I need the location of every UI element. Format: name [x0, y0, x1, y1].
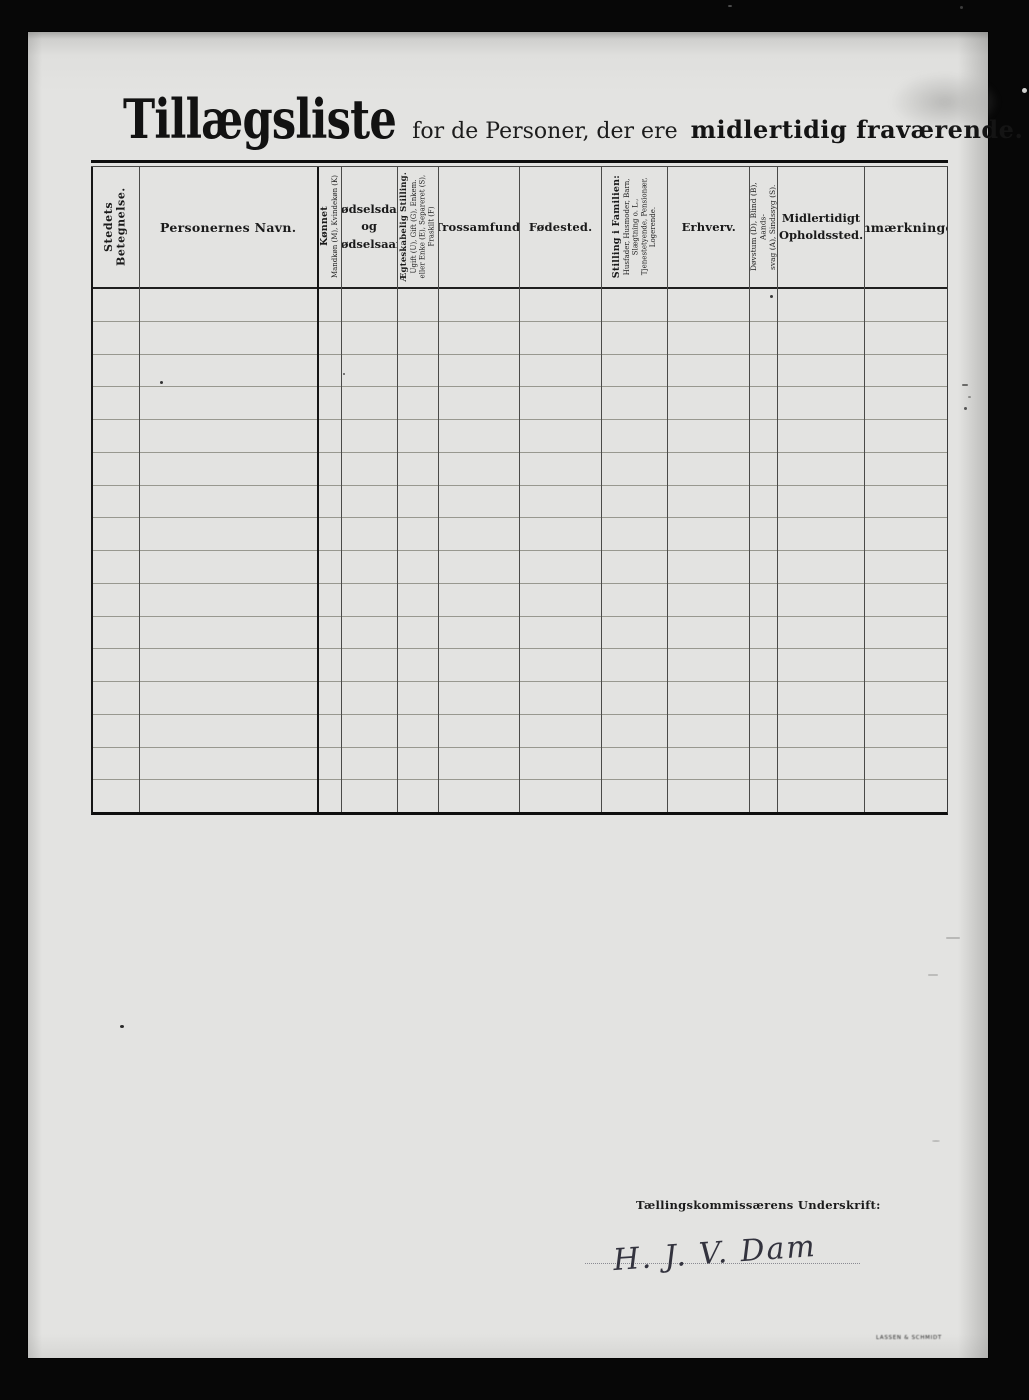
- table-cell-empty: [319, 584, 341, 617]
- ink-bleed-ghost: [890, 72, 1000, 132]
- table-cell-empty: [520, 748, 601, 781]
- table-cell-empty: [778, 322, 864, 355]
- scan-speck: [964, 407, 967, 410]
- column-header-subtext: Døvstum (D), Blind (B), Aands-: [750, 169, 768, 285]
- column-body: [319, 289, 341, 812]
- table-cell-empty: [439, 617, 519, 650]
- column-header-line: Fødselsaar.: [342, 236, 397, 253]
- table-cell-empty: [778, 486, 864, 519]
- table-cell-empty: [750, 518, 777, 551]
- table-cell-empty: [668, 420, 749, 453]
- table-cell-empty: [602, 420, 668, 453]
- table-cell-empty: [93, 551, 139, 584]
- table-cell-empty: [319, 617, 341, 650]
- table-cell-empty: [93, 420, 139, 453]
- column-header-subtext: Husfader, Husmoder, Barn,: [623, 175, 632, 278]
- table-cell-empty: [520, 322, 601, 355]
- table-cell-empty: [439, 551, 519, 584]
- table-cell-empty: [439, 387, 519, 420]
- table-cell-empty: [602, 322, 668, 355]
- table-cell-empty: [140, 518, 317, 551]
- table-cell-empty: [668, 584, 749, 617]
- table-cell-empty: [602, 387, 668, 420]
- table-cell-empty: [140, 617, 317, 650]
- column-header-label: Trossamfund.: [439, 220, 519, 234]
- table-cell-empty: [778, 518, 864, 551]
- table-cell-empty: [319, 289, 341, 322]
- column-header-subtext: Ugift (U), Gift (G), Enkem.: [410, 172, 419, 281]
- table-cell-empty: [865, 355, 947, 388]
- column-header-line: Fødselsdag: [342, 201, 397, 218]
- table-cell-empty: [398, 584, 439, 617]
- table-cell-empty: [342, 420, 397, 453]
- column-header-label: Stilling i Familien:: [612, 175, 623, 278]
- column-header-label: Erhverv.: [682, 220, 736, 234]
- table-cell-empty: [602, 551, 668, 584]
- table-cell-empty: [342, 748, 397, 781]
- signature-line: H. J. V. Dam: [585, 1226, 860, 1264]
- table-cell-empty: [342, 780, 397, 812]
- table-cell-empty: [140, 355, 317, 388]
- table-cell-empty: [140, 551, 317, 584]
- column-header-subtext: Fraskilt (F): [427, 172, 436, 281]
- table-cell-empty: [140, 387, 317, 420]
- table-cell-empty: [439, 289, 519, 322]
- table-cell-empty: [750, 551, 777, 584]
- table-cell-empty: [439, 518, 519, 551]
- column-header-subtext: svag (A), Sindssyg (S).: [768, 169, 777, 285]
- table-cell-empty: [520, 453, 601, 486]
- table-cell-empty: [93, 322, 139, 355]
- table-cell-empty: [439, 748, 519, 781]
- table-cell-empty: [602, 780, 668, 812]
- table-cell-empty: [750, 617, 777, 650]
- table-cell-empty: [778, 748, 864, 781]
- table-cell-empty: [140, 649, 317, 682]
- table-cell-empty: [668, 617, 749, 650]
- table-cell-empty: [778, 682, 864, 715]
- table-cell-empty: [319, 322, 341, 355]
- handwritten-signature: H. J. V. Dam: [612, 1229, 818, 1278]
- table-cell-empty: [668, 355, 749, 388]
- scan-speck: [962, 384, 968, 386]
- column-body: [140, 289, 317, 812]
- column-body: [668, 289, 749, 812]
- table-cell-empty: [520, 617, 601, 650]
- table-cell-empty: [140, 453, 317, 486]
- table-cell-empty: [602, 682, 668, 715]
- column-header-stilling-i-familien: Stilling i Familien: Husfader, Husmoder,…: [602, 167, 668, 289]
- table-cell-empty: [602, 649, 668, 682]
- page-title-mid: for de Personer, der ere: [412, 119, 677, 144]
- table-cell-empty: [398, 289, 439, 322]
- table-cell-empty: [439, 584, 519, 617]
- column-header-line: og: [342, 218, 397, 235]
- column-aegteskabelig-stilling: Ægteskabelig Stilling. Ugift (U), Gift (…: [398, 167, 440, 812]
- table-cell-empty: [398, 486, 439, 519]
- table-cell-empty: [140, 420, 317, 453]
- table-cell-empty: [398, 551, 439, 584]
- table-cell-empty: [778, 355, 864, 388]
- table-cell-empty: [319, 486, 341, 519]
- table-cell-empty: [520, 780, 601, 812]
- table-cell-empty: [439, 453, 519, 486]
- table-cell-empty: [668, 748, 749, 781]
- table-cell-empty: [865, 649, 947, 682]
- table-cell-empty: [439, 649, 519, 682]
- table-cell-empty: [865, 715, 947, 748]
- table-cell-empty: [140, 486, 317, 519]
- table-cell-empty: [750, 682, 777, 715]
- table-cell-empty: [668, 649, 749, 682]
- table-cell-empty: [865, 584, 947, 617]
- table-cell-empty: [750, 715, 777, 748]
- table-cell-empty: [602, 748, 668, 781]
- table-cell-empty: [398, 748, 439, 781]
- table-cell-empty: [520, 387, 601, 420]
- table-cell-empty: [439, 322, 519, 355]
- table-cell-empty: [342, 715, 397, 748]
- table-cell-empty: [668, 715, 749, 748]
- scan-speck: [946, 937, 960, 939]
- table-cell-empty: [93, 617, 139, 650]
- column-header-anmaerkninger: Anmærkninger: [865, 167, 947, 289]
- scan-speck: [960, 6, 963, 9]
- census-table: Stedets Betegnelse. Personernes Navn. Kø…: [91, 160, 948, 815]
- table-cell-empty: [778, 289, 864, 322]
- column-body: [520, 289, 601, 812]
- table-cell-empty: [319, 453, 341, 486]
- table-cell-empty: [140, 584, 317, 617]
- column-header-aegteskabelig-stilling: Ægteskabelig Stilling. Ugift (U), Gift (…: [398, 167, 439, 289]
- table-cell-empty: [398, 355, 439, 388]
- table-cell-empty: [865, 551, 947, 584]
- table-cell-empty: [140, 682, 317, 715]
- column-header-foedselsdag: Fødselsdag og Fødselsaar.: [342, 167, 397, 289]
- table-cell-empty: [140, 748, 317, 781]
- table-cell-empty: [520, 518, 601, 551]
- column-trossamfund: Trossamfund.: [439, 167, 520, 812]
- scan-speck: [160, 381, 163, 384]
- table-cell-empty: [520, 584, 601, 617]
- column-header-label: Anmærkninger: [865, 220, 947, 235]
- table-cell-empty: [398, 420, 439, 453]
- table-cell-empty: [439, 355, 519, 388]
- table-cell-empty: [439, 715, 519, 748]
- table-cell-empty: [778, 780, 864, 812]
- table-cell-empty: [439, 486, 519, 519]
- table-cell-empty: [342, 649, 397, 682]
- column-body: [93, 289, 139, 812]
- table-cell-empty: [319, 682, 341, 715]
- table-cell-empty: [319, 551, 341, 584]
- table-cell-empty: [398, 322, 439, 355]
- table-cell-empty: [319, 387, 341, 420]
- table-cell-empty: [93, 518, 139, 551]
- table-cell-empty: [342, 453, 397, 486]
- table-cell-empty: [319, 518, 341, 551]
- column-header-koennet: Kønnet Mandkøn (M), Kvindekøn (K): [319, 167, 341, 289]
- table-cell-empty: [778, 617, 864, 650]
- table-cell-empty: [778, 584, 864, 617]
- column-body: [342, 289, 397, 812]
- table-cell-empty: [342, 322, 397, 355]
- table-cell-empty: [750, 780, 777, 812]
- table-cell-empty: [342, 682, 397, 715]
- table-cell-empty: [668, 486, 749, 519]
- column-header-label: Fødested.: [529, 220, 593, 234]
- table-cell-empty: [750, 649, 777, 682]
- table-cell-empty: [93, 715, 139, 748]
- column-header-line: Midlertidigt: [779, 210, 863, 227]
- table-cell-empty: [140, 780, 317, 812]
- column-body: [602, 289, 668, 812]
- table-cell-empty: [865, 486, 947, 519]
- table-cell-empty: [602, 486, 668, 519]
- scan-speck: [932, 1140, 940, 1142]
- table-cell-empty: [398, 715, 439, 748]
- column-header-label: Kønnet: [320, 175, 331, 278]
- table-cell-empty: [750, 420, 777, 453]
- table-cell-empty: [865, 682, 947, 715]
- page-title-main: Tillægsliste: [123, 92, 396, 146]
- table-cell-empty: [342, 518, 397, 551]
- column-header-stedets-betegnelse: Stedets Betegnelse.: [93, 167, 139, 289]
- column-body: [439, 289, 519, 812]
- column-header-label: Stedets Betegnelse.: [103, 169, 128, 285]
- column-header-subtext: Mandkøn (M), Kvindekøn (K): [331, 175, 340, 278]
- table-cell-empty: [140, 289, 317, 322]
- table-cell-empty: [319, 748, 341, 781]
- scan-speck: [728, 5, 732, 7]
- column-header-foedested: Fødested.: [520, 167, 601, 289]
- table-cell-empty: [93, 780, 139, 812]
- column-body: [778, 289, 864, 812]
- column-header-doevstum: Døvstum (D), Blind (B), Aands- svag (A),…: [750, 167, 777, 289]
- table-cell-empty: [520, 715, 601, 748]
- column-header-trossamfund: Trossamfund.: [439, 167, 519, 289]
- table-cell-empty: [750, 355, 777, 388]
- scan-speck: [120, 1025, 124, 1028]
- table-cell-empty: [140, 715, 317, 748]
- table-cell-empty: [319, 355, 341, 388]
- table-cell-empty: [319, 780, 341, 812]
- table-cell-empty: [93, 682, 139, 715]
- table-cell-empty: [778, 420, 864, 453]
- table-cell-empty: [319, 715, 341, 748]
- table-cell-empty: [750, 748, 777, 781]
- column-header-midlertidigt-opholdssted: Midlertidigt Opholdssted.: [778, 167, 864, 289]
- table-cell-empty: [342, 486, 397, 519]
- table-cell-empty: [865, 518, 947, 551]
- column-stedets-betegnelse: Stedets Betegnelse.: [93, 167, 140, 812]
- column-header-subtext: Slægtning o. L.,: [631, 175, 640, 278]
- table-cell-empty: [668, 682, 749, 715]
- column-body: [750, 289, 777, 812]
- table-cell-empty: [520, 682, 601, 715]
- table-cell-empty: [520, 420, 601, 453]
- signature-label: Tællingskommissærens Underskrift:: [636, 1198, 881, 1212]
- table-cell-empty: [93, 748, 139, 781]
- table-cell-empty: [602, 715, 668, 748]
- column-header-personernes-navn: Personernes Navn.: [140, 167, 317, 289]
- table-cell-empty: [520, 486, 601, 519]
- census-form-page: Tillægsliste for de Personer, der ere mi…: [28, 32, 988, 1358]
- scan-speck: [968, 396, 971, 398]
- table-cell-empty: [398, 518, 439, 551]
- column-anmaerkninger: Anmærkninger: [865, 167, 947, 812]
- table-cell-empty: [750, 322, 777, 355]
- table-cell-empty: [865, 289, 947, 322]
- table-cell-empty: [865, 387, 947, 420]
- column-koennet: Kønnet Mandkøn (M), Kvindekøn (K): [319, 167, 342, 812]
- column-body: [865, 289, 947, 812]
- table-cell-empty: [520, 289, 601, 322]
- column-header-subtext: Logerende.: [649, 175, 658, 278]
- table-cell-empty: [398, 682, 439, 715]
- table-cell-empty: [750, 453, 777, 486]
- table-cell-empty: [602, 518, 668, 551]
- column-header-subtext: Tjenestetyende, Pensionær,: [640, 175, 649, 278]
- table-cell-empty: [750, 387, 777, 420]
- printers-mark: LASSEN & SCHMIDT: [876, 1335, 942, 1341]
- table-cell-empty: [668, 453, 749, 486]
- table-cell-empty: [439, 780, 519, 812]
- table-cell-empty: [439, 682, 519, 715]
- table-cell-empty: [668, 322, 749, 355]
- table-cell-empty: [668, 551, 749, 584]
- table-cell-empty: [778, 453, 864, 486]
- column-header-label: Ægteskabelig Stilling.: [400, 172, 410, 281]
- table-cell-empty: [342, 551, 397, 584]
- table-cell-empty: [93, 649, 139, 682]
- table-cell-empty: [520, 649, 601, 682]
- table-cell-empty: [342, 617, 397, 650]
- column-stilling-i-familien: Stilling i Familien: Husfader, Husmoder,…: [602, 167, 669, 812]
- table-cell-empty: [342, 387, 397, 420]
- scan-speck: [770, 295, 773, 298]
- scan-speck: [343, 373, 345, 375]
- scanner-background: Tillægsliste for de Personer, der ere mi…: [0, 0, 1029, 1400]
- table-cell-empty: [668, 387, 749, 420]
- table-cell-empty: [520, 355, 601, 388]
- table-cell-empty: [865, 748, 947, 781]
- table-cell-empty: [602, 453, 668, 486]
- column-midlertidigt-opholdssted: Midlertidigt Opholdssted.: [778, 167, 865, 812]
- table-cell-empty: [93, 584, 139, 617]
- table-cell-empty: [398, 649, 439, 682]
- column-foedested: Fødested.: [520, 167, 602, 812]
- table-cell-empty: [602, 584, 668, 617]
- column-body: [398, 289, 439, 812]
- table-cell-empty: [520, 551, 601, 584]
- table-cell-empty: [750, 289, 777, 322]
- table-cell-empty: [140, 322, 317, 355]
- table-cell-empty: [602, 289, 668, 322]
- scan-speck: [928, 974, 938, 976]
- table-cell-empty: [398, 387, 439, 420]
- scan-speck: [1022, 88, 1027, 93]
- table-cell-empty: [865, 617, 947, 650]
- table-cell-empty: [398, 617, 439, 650]
- table-cell-empty: [778, 387, 864, 420]
- table-cell-empty: [865, 453, 947, 486]
- table-cell-empty: [398, 453, 439, 486]
- table-cell-empty: [319, 420, 341, 453]
- table-cell-empty: [93, 453, 139, 486]
- table-cell-empty: [668, 780, 749, 812]
- table-cell-empty: [778, 649, 864, 682]
- column-header-subtext: eller Enke (E), Separeret (S),: [418, 172, 427, 281]
- table-cell-empty: [668, 518, 749, 551]
- table-cell-empty: [93, 289, 139, 322]
- table-cell-empty: [778, 715, 864, 748]
- column-erhverv: Erhverv.: [668, 167, 750, 812]
- table-cell-empty: [93, 355, 139, 388]
- table-cell-empty: [865, 322, 947, 355]
- table-cell-empty: [750, 584, 777, 617]
- column-foedselsdag: Fødselsdag og Fødselsaar.: [342, 167, 398, 812]
- table-cell-empty: [342, 584, 397, 617]
- table-cell-empty: [602, 617, 668, 650]
- page-title: Tillægsliste for de Personer, der ere mi…: [123, 92, 1023, 146]
- table-cell-empty: [865, 420, 947, 453]
- table-cell-empty: [602, 355, 668, 388]
- column-personernes-navn: Personernes Navn.: [140, 167, 319, 812]
- column-doevstum: Døvstum (D), Blind (B), Aands- svag (A),…: [750, 167, 778, 812]
- column-header-label: Personernes Navn.: [160, 220, 296, 235]
- column-header-erhverv: Erhverv.: [668, 167, 749, 289]
- column-header-line: Opholdssted.: [779, 227, 863, 244]
- table-cell-empty: [865, 780, 947, 812]
- table-cell-empty: [778, 551, 864, 584]
- table-cell-empty: [398, 780, 439, 812]
- table-cell-empty: [750, 486, 777, 519]
- table-cell-empty: [342, 289, 397, 322]
- table-cell-empty: [439, 420, 519, 453]
- table-cell-empty: [93, 387, 139, 420]
- table-cell-empty: [668, 289, 749, 322]
- table-cell-empty: [342, 355, 397, 388]
- table-cell-empty: [319, 649, 341, 682]
- table-cell-empty: [93, 486, 139, 519]
